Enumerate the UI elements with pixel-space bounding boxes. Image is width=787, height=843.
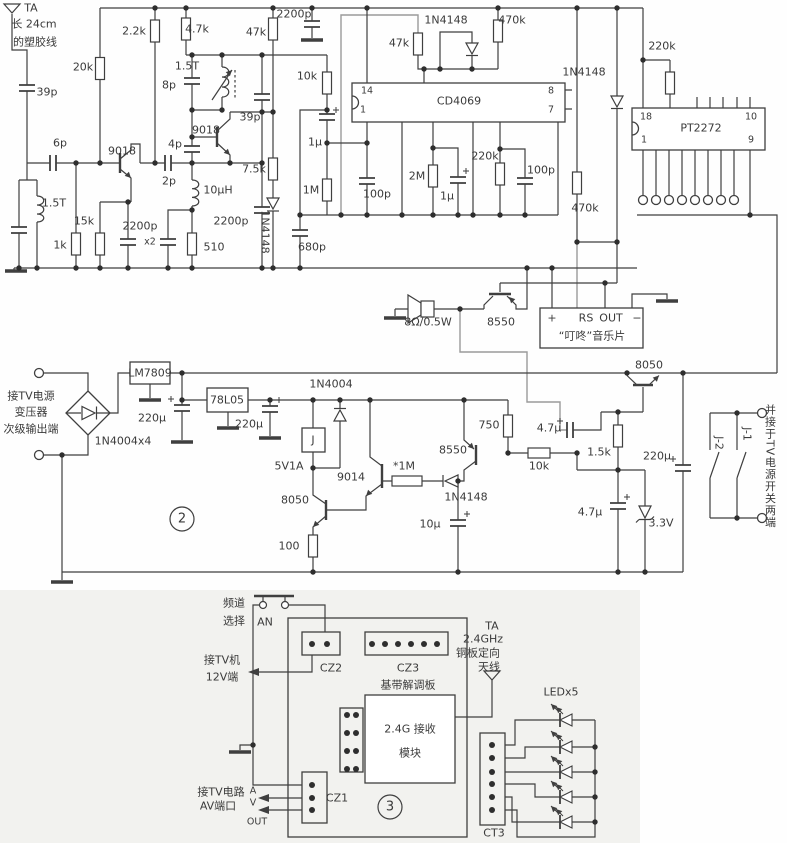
cap-220u-a: 220µ [138, 413, 166, 424]
cap-680p: 680p [298, 242, 326, 253]
res-1m-sym [323, 179, 332, 201]
tv-switch-note: 并接于TV电源开关两端 [765, 404, 776, 528]
pt2272-pin1: 1 [641, 135, 647, 145]
res-220k-a-sym [496, 163, 505, 185]
res-10k-a-sym [323, 72, 332, 94]
d-1n4148-b-sym [466, 43, 478, 54]
cap-100p-b: 100p [527, 165, 555, 176]
cd4069-pin14: 14 [361, 86, 373, 96]
res-10k-a: 10k [297, 71, 317, 82]
antenna-note-2: 的塑胶线 [13, 37, 57, 48]
ant2-note-3: 天线 [478, 662, 500, 673]
d-1n4148-c: 1N4148 [562, 67, 605, 78]
cap-6p-a: 6p [53, 138, 67, 149]
cap-8p: 8p [162, 80, 176, 91]
module-name-1: 2.4G 接收 [384, 724, 436, 735]
board3-number: 3 [386, 801, 394, 814]
music-pin-out: OUT [599, 313, 622, 324]
bridge-diode-sym [82, 407, 95, 420]
tv12v-note-2: 12V端 [206, 672, 239, 683]
relay-contact-j1: J-1 [742, 427, 753, 441]
res-15k: 15k [74, 216, 94, 227]
cap-100p-a: 100p [363, 189, 391, 200]
res-100-sym [309, 535, 318, 557]
music-pin-plus: + [547, 313, 556, 324]
av-note-1: 接TV电路 [197, 787, 244, 798]
conn-ct3: CT3 [483, 828, 504, 839]
pt2272-pin9: 9 [748, 135, 754, 145]
terminal-ac-2 [35, 451, 44, 460]
psu-note-2: 变压器 [15, 407, 48, 418]
res-10k-b: 10k [529, 461, 549, 472]
cap-39p-b: 39p [240, 112, 261, 123]
res-1k-sym [72, 233, 81, 255]
cap-2200p-d: 2200p [277, 9, 312, 20]
channel-note-1: 频道 [223, 598, 245, 609]
q-8050-b: 8050 [281, 495, 309, 506]
cap-2p: 2p [162, 176, 176, 187]
ic-78l05: 78L05 [210, 395, 244, 406]
module-24g-body [365, 695, 455, 783]
led-array [548, 704, 595, 829]
cap-220u-b: 220µ [235, 419, 263, 430]
res-510: 510 [204, 242, 225, 253]
res-470k-a: 470k [498, 15, 525, 26]
antenna-1 [4, 4, 20, 13]
coil-10uh-sym [192, 180, 199, 206]
res-20k-sym [96, 58, 105, 80]
conn-cz2: CZ2 [320, 663, 342, 674]
d-1n4148-a: 1N4148 [260, 210, 271, 253]
arrow-av-v [258, 806, 269, 814]
led-count: LEDx5 [543, 687, 578, 698]
cd4069-pin8: 8 [548, 86, 554, 96]
cap-4u7-b: 4.7µ [578, 507, 603, 518]
terminal-ac-1 [35, 369, 44, 378]
led-1 [548, 704, 595, 727]
tv12v-note-1: 接TV机 [204, 655, 240, 666]
res-1k5-sym [614, 425, 623, 447]
arrow-av-a [258, 794, 269, 802]
music-chip-name: “叮咚”音乐片 [559, 331, 625, 342]
cap-2200p-x2: x2 [144, 237, 156, 247]
conn-cz1: CZ1 [326, 793, 348, 804]
led-3 [548, 756, 595, 779]
pt2272-pin10: 10 [745, 112, 757, 122]
d-1n4004: 1N4004 [309, 379, 352, 390]
speaker-rating: 8Ω/0.5W [404, 317, 451, 328]
res-1m: 1M [303, 185, 320, 196]
res-47k-a-sym [269, 18, 278, 40]
music-pin-rs: RS [579, 313, 594, 324]
relay-rating: 5V1A [274, 461, 303, 472]
d-zener-3v3: 3.3V [648, 518, 673, 529]
q-9014: 9014 [337, 472, 365, 483]
ic-pt2272: PT2272 [680, 123, 721, 134]
conn-cz3: CZ3 [397, 663, 419, 674]
coil-10uh: 10µH [203, 185, 232, 196]
cap-2200p-c: 2200p [214, 216, 249, 227]
res-7k5-sym [269, 158, 278, 180]
schematic-page: TA长 24cm的塑胶线39p20k2.2k4.7k47k2200p1.5T8p… [0, 0, 787, 843]
music-pin-minus: − [632, 313, 641, 324]
av-note-2: AV端口 [200, 801, 236, 812]
bridge-1n4004: 1N4004x4 [95, 436, 152, 447]
av-out: OUT [247, 817, 267, 827]
res-2m: 2M [409, 171, 426, 182]
ic-lm7809: LM7809 [128, 368, 172, 379]
q-8050-a: 8050 [635, 360, 663, 371]
ta-antenna-label: TA [24, 3, 37, 14]
module-name-2: 模块 [399, 748, 421, 759]
q-9018-a: 9018 [108, 146, 136, 157]
res-1m-star: *1M [393, 461, 415, 472]
res-2m-sym [429, 165, 438, 187]
res-15k-sym [96, 233, 105, 255]
cap-4p: 4p [168, 139, 182, 150]
ant2-label: TA [485, 621, 498, 632]
res-4k7: 4.7k [185, 24, 209, 35]
ic-cd4069: CD4069 [437, 96, 481, 107]
conn-8pin-body [340, 708, 363, 772]
led-5 [548, 806, 595, 829]
res-750-sym [504, 415, 513, 437]
res-1m-star-sym [392, 476, 422, 486]
cap-10u: 10µ [420, 519, 441, 530]
coil-1t5-b: 1.5T [175, 61, 199, 72]
conn-cz2-body [302, 632, 340, 655]
d-1n4148-c-sym [611, 96, 623, 107]
d-1n4148-b: 1N4148 [424, 15, 467, 26]
res-100: 100 [279, 541, 300, 552]
res-7k5: 7.5k [242, 164, 266, 175]
pt2272-pin18: 18 [640, 112, 652, 122]
res-47k-b: 47k [389, 38, 409, 49]
schematic-canvas [0, 0, 787, 843]
cap-220u-c: 220µ [643, 451, 671, 462]
res-510-sym [188, 233, 197, 255]
led-4 [548, 781, 595, 804]
cd4069-pin1: 1 [360, 105, 366, 115]
av-v: V [250, 798, 257, 808]
res-20k: 20k [73, 62, 93, 73]
led-2 [548, 731, 595, 754]
psu-note-3: 次级输出端 [4, 424, 59, 435]
cap-2200p-a: 2200p [123, 221, 158, 232]
board2-number: 2 [178, 513, 186, 526]
relay-j: J [311, 435, 314, 446]
res-2k2: 2.2k [122, 26, 146, 37]
res-1k: 1k [53, 240, 66, 251]
q-8550-b: 8550 [439, 445, 467, 456]
cd4069-pin7: 7 [548, 105, 554, 115]
res-10k-b-sym [528, 448, 550, 458]
res-1k5: 1.5k [587, 447, 611, 458]
q-9018-b: 9018 [192, 125, 220, 136]
res-47k-b-sym [414, 33, 423, 55]
relay-contact-j2: J-2 [714, 436, 725, 450]
wires-gray [341, 15, 577, 430]
antenna-note-1: 长 24cm [11, 19, 56, 30]
cap-4u7-a: 4.7µ [537, 423, 562, 434]
res-470k-b: 470k [571, 203, 598, 214]
res-47k-a: 47k [246, 27, 266, 38]
push-button-an[interactable] [254, 596, 294, 609]
av-a: A [250, 786, 257, 796]
board3-name: 基带解调板 [381, 680, 436, 691]
coil-1t5-a: 1.5T [42, 198, 66, 209]
d-1n4148-d: 1N4148 [444, 492, 487, 503]
res-750: 750 [479, 420, 500, 431]
res-220k-a: 220k [471, 151, 498, 162]
cap-1u-b: 1µ [440, 191, 454, 202]
cap-39p-a: 39p [37, 87, 58, 98]
res-220k-b-sym [666, 72, 675, 94]
channel-note-2: 选择 [223, 616, 245, 627]
res-470k-b-sym [573, 172, 582, 194]
psu-note-1: 接TV电源 [7, 391, 54, 402]
res-2k2-sym [151, 20, 160, 42]
ant2-note-1: 2.4GHz [463, 634, 503, 645]
q-8550-a: 8550 [487, 317, 515, 328]
ant2-note-2: 铜板定向 [456, 648, 500, 659]
cap-1u-a: 1µ [308, 137, 322, 148]
res-220k-b: 220k [648, 41, 675, 52]
button-an: AN [257, 617, 273, 628]
d-1n4004-sym [334, 410, 346, 421]
